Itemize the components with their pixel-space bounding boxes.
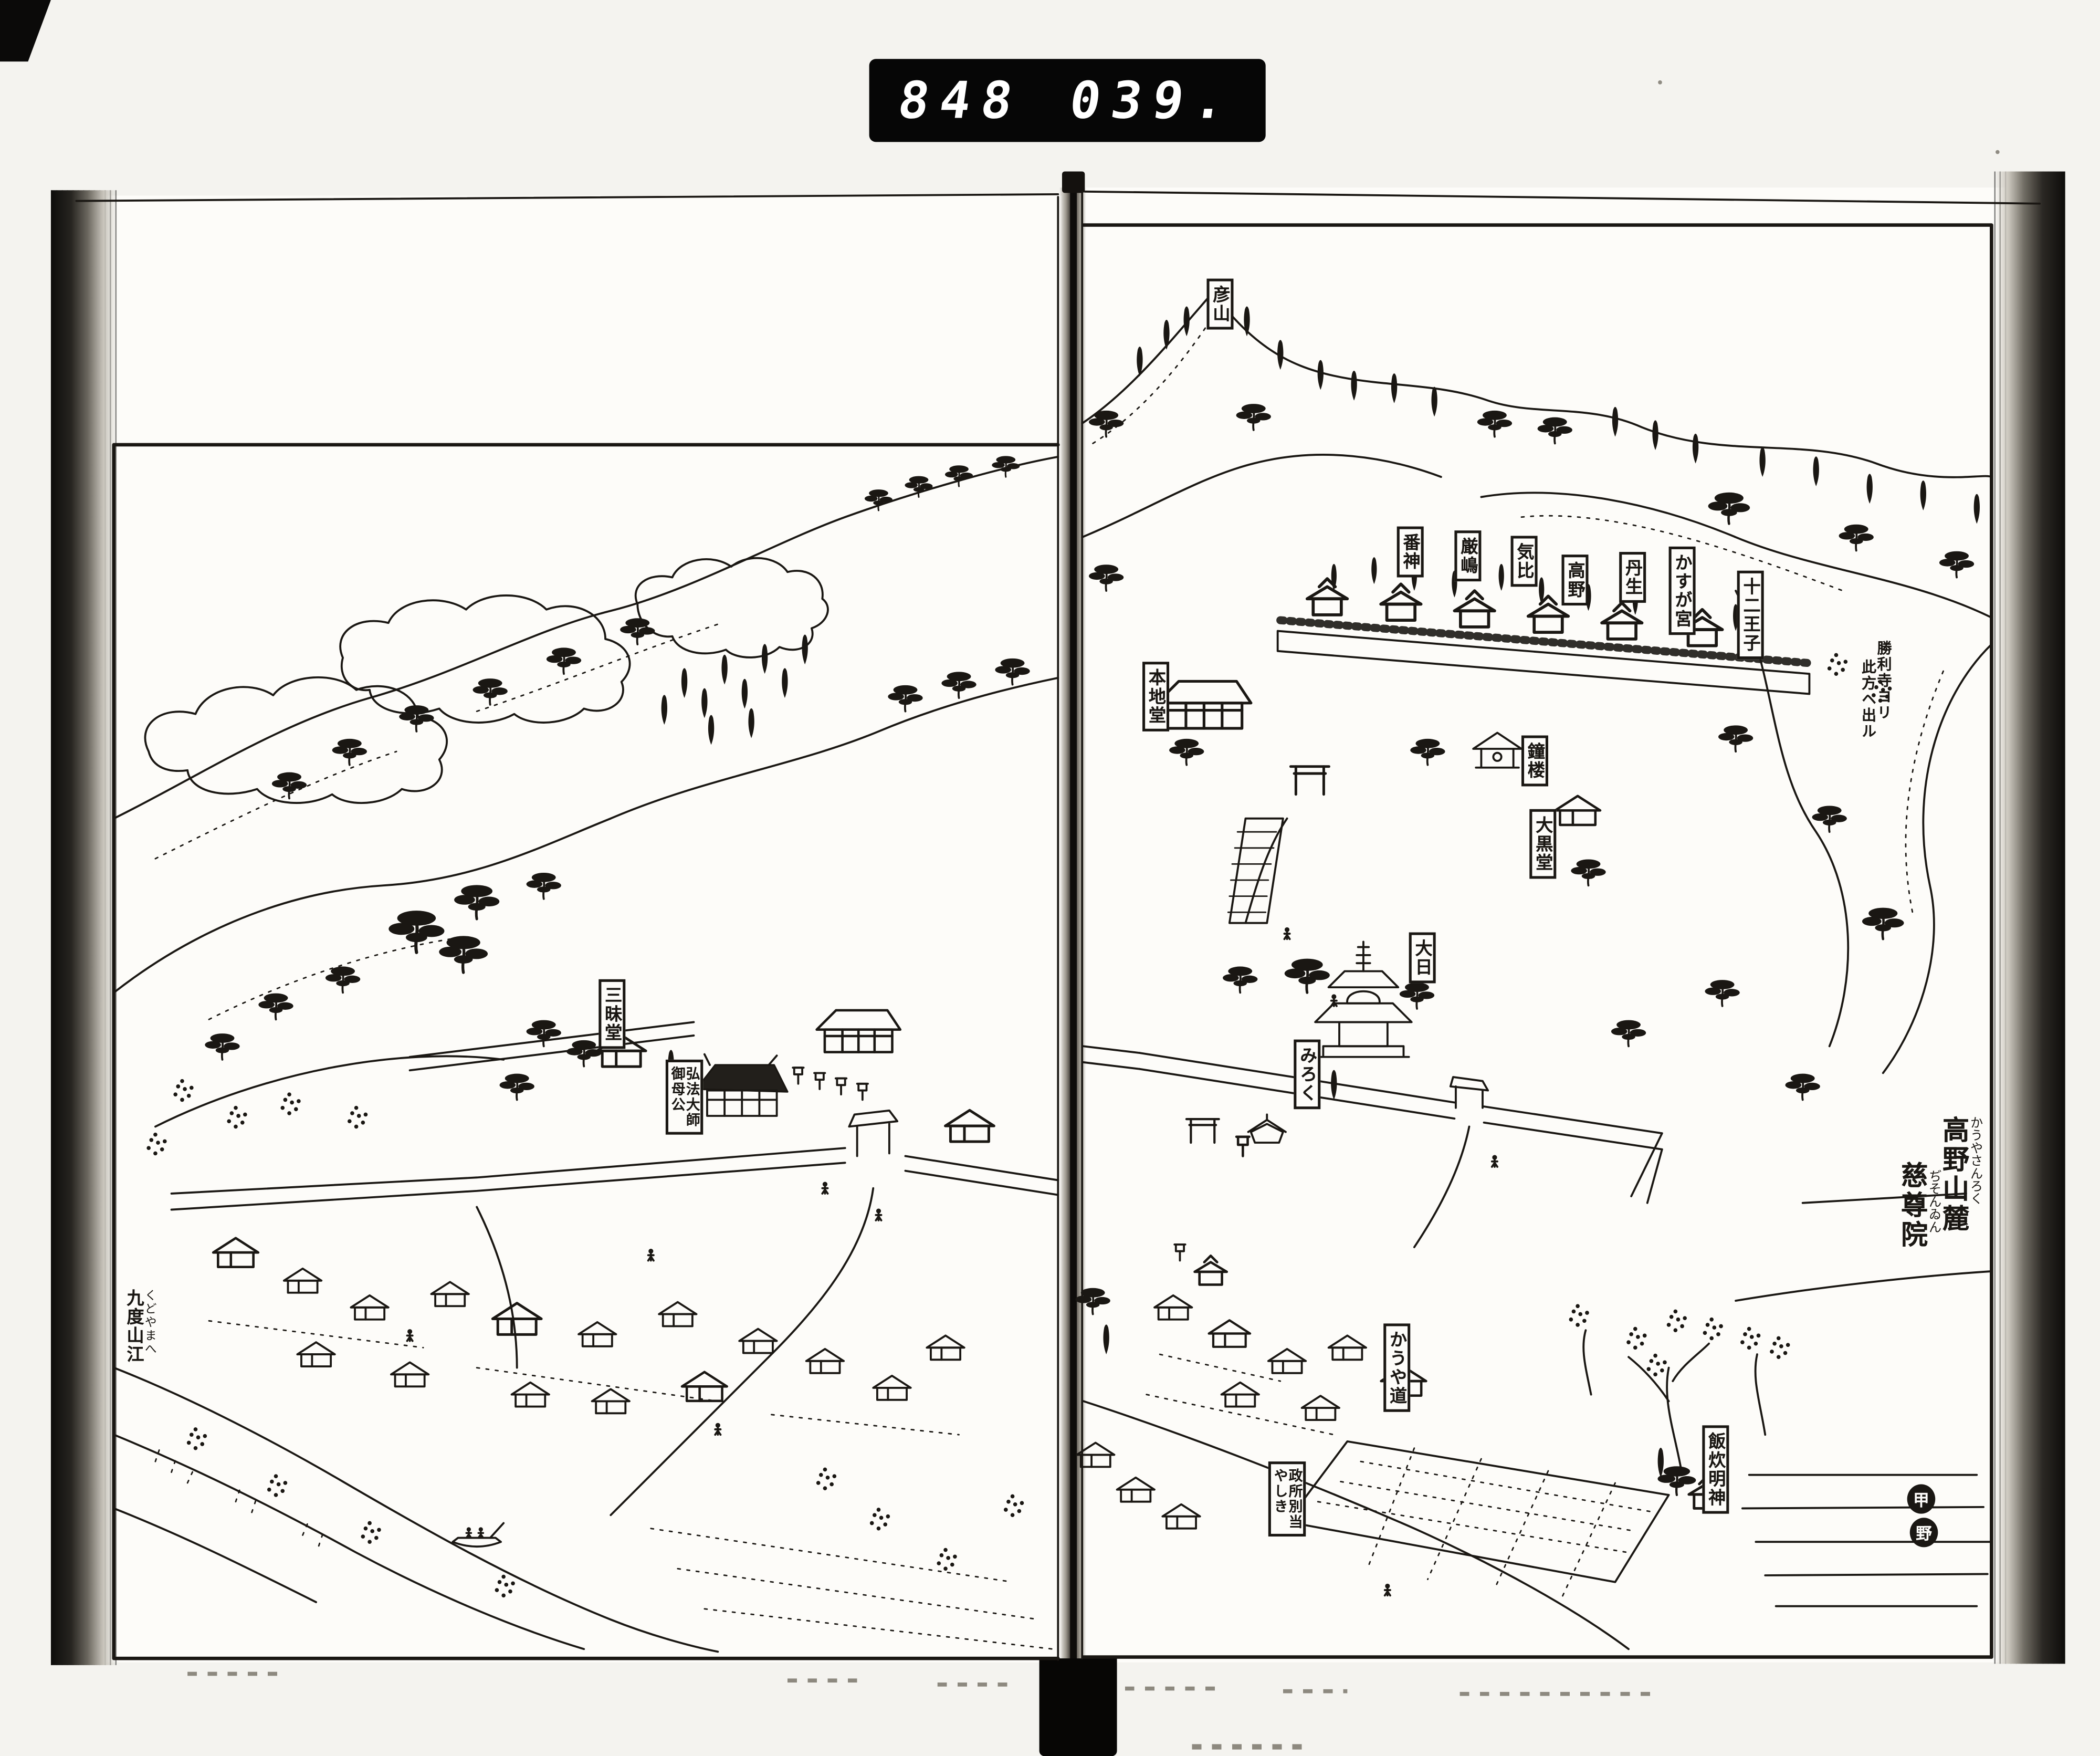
label-shrine-kasuga: かすが宮 [1669, 547, 1695, 635]
label-belfry: 鐘楼 [1521, 736, 1548, 787]
scan-dash-mark [187, 1672, 281, 1676]
note-kudoyama: くどやまへ 九度山江 [124, 1289, 155, 1364]
counter-right-digits: 039. [1067, 71, 1241, 130]
illustration-title-jisonin: かうやさんろく 高野山麓 ぢそんゐん 慈尊院 [1896, 1116, 1979, 1234]
label-honjido: 本地堂 [1142, 662, 1169, 731]
label-shrine-junioji: 十二王子 [1737, 571, 1763, 659]
note-route-from-shorij: 勝利寺ヨリ 此方ヘ出ル [1859, 640, 1890, 720]
label-miroku: みろく [1294, 1040, 1320, 1110]
scan-dash-mark [787, 1678, 860, 1682]
artist-seal-top: 甲 [1907, 1485, 1936, 1514]
scan-speck [1658, 80, 1662, 85]
scan-dash-mark [1283, 1689, 1347, 1694]
label-shrine-banshin: 番神 [1397, 527, 1423, 578]
woodblock-illustration: .ln{stroke:#1a1713;fill:none;stroke-widt… [75, 189, 2041, 1663]
artist-seal-bottom: 野 [1910, 1518, 1938, 1547]
label-shrine-niu: 丹生 [1619, 552, 1645, 603]
label-sanmaido: 三昧堂 [598, 979, 625, 1049]
label-mandokoro-betto-residence: 政所別当 やしき [1268, 1461, 1306, 1537]
note-kobo-daishi-mother: 弘法大師 御母公 [666, 1060, 703, 1135]
scan-corner-blot [0, 0, 51, 61]
scan-dash-mark [1460, 1692, 1661, 1696]
label-shrine-koya: 高野 [1561, 555, 1588, 605]
scanned-book-spread: 848 039. .ln{stroke:#1a1713;fill:none;st… [0, 0, 2100, 1756]
label-shrine-kehi: 気比 [1511, 536, 1537, 587]
label-koya-road: かうや道 [1383, 1323, 1410, 1412]
counter-left-digits: 848 [895, 71, 1027, 130]
label-shrine-itsukushima: 厳嶋 [1454, 530, 1480, 581]
book-spine-tab [1039, 1658, 1117, 1756]
label-daikokudo: 大黒堂 [1529, 809, 1556, 879]
scan-dash-mark [1192, 1744, 1312, 1749]
scan-speck [1996, 150, 2000, 154]
label-meshitaki-myojin: 飯炊明神 [1702, 1425, 1728, 1513]
label-peak-hikosan: 彦山 [1206, 279, 1233, 330]
scan-dash-mark [938, 1682, 1015, 1687]
microfilm-frame-counter: 848 039. [869, 59, 1266, 142]
scan-dash-mark [1125, 1687, 1219, 1691]
label-dainichi-pagoda: 大日 [1409, 933, 1435, 984]
